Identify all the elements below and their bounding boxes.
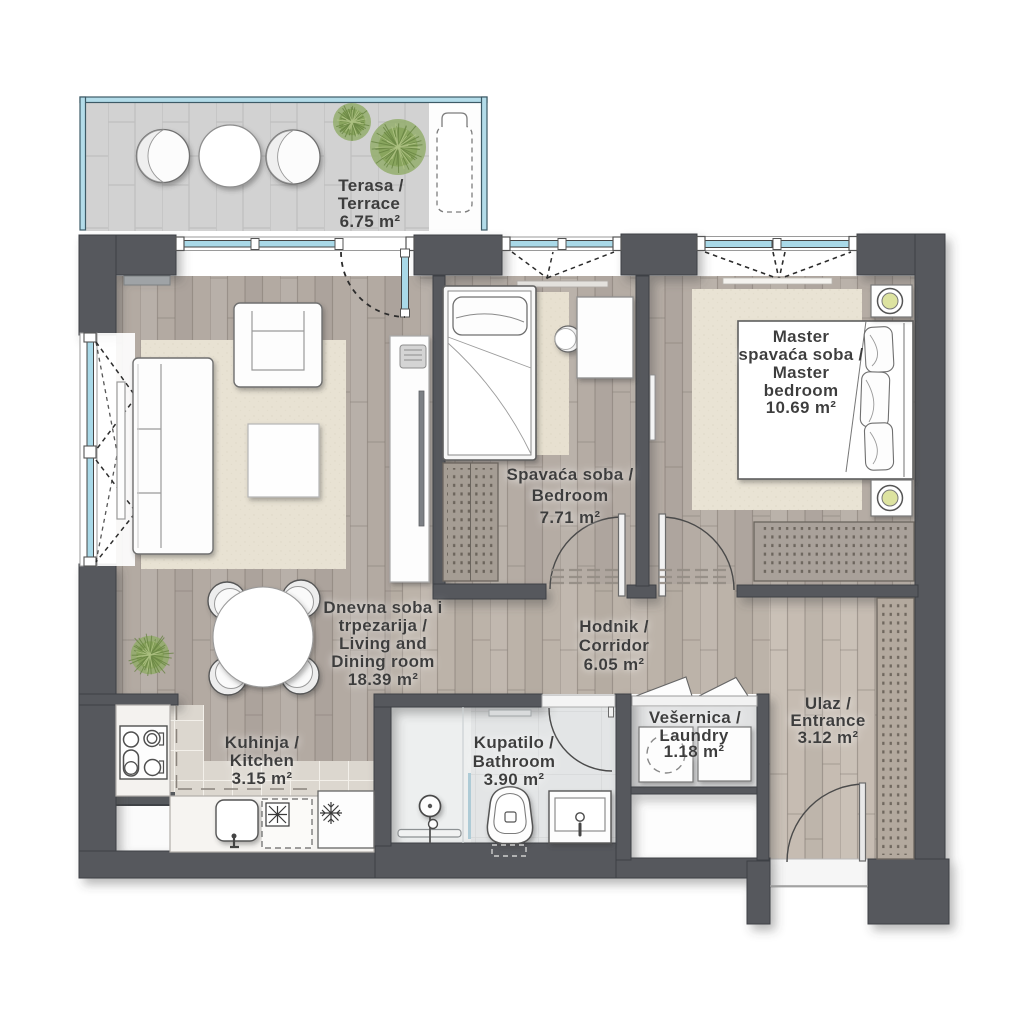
svg-text:Master: Master [773,327,830,346]
svg-text:trpezarija /: trpezarija / [339,616,428,635]
svg-text:Kitchen: Kitchen [230,751,294,770]
svg-text:3.15 m²: 3.15 m² [232,769,293,788]
svg-text:Vešernica /: Vešernica / [649,708,741,727]
svg-text:Kupatilo /: Kupatilo / [474,733,554,752]
svg-text:Corridor: Corridor [579,636,649,655]
svg-text:Bedroom: Bedroom [532,486,609,505]
svg-text:18.39 m²: 18.39 m² [348,670,418,689]
svg-text:Terasa /: Terasa / [338,176,403,195]
svg-text:1.18 m²: 1.18 m² [664,742,725,761]
svg-text:6.05 m²: 6.05 m² [584,655,645,674]
svg-text:3.12 m²: 3.12 m² [798,728,859,747]
svg-text:spavaća soba /: spavaća soba / [738,345,863,364]
svg-text:6.75 m²: 6.75 m² [340,212,401,231]
svg-text:Bathroom: Bathroom [473,752,556,771]
svg-text:Master: Master [773,363,830,382]
svg-text:Dnevna soba i: Dnevna soba i [323,598,442,617]
svg-text:Dining room: Dining room [331,652,434,671]
svg-text:Hodnik /: Hodnik / [579,617,648,636]
svg-text:Spavaća soba /: Spavaća soba / [506,465,633,484]
svg-text:Kuhinja /: Kuhinja / [225,733,299,752]
svg-text:7.71 m²: 7.71 m² [540,508,601,527]
svg-text:Living and: Living and [339,634,427,653]
svg-text:10.69 m²: 10.69 m² [766,398,836,417]
svg-text:3.90 m²: 3.90 m² [484,770,545,789]
svg-text:Terrace: Terrace [338,194,400,213]
